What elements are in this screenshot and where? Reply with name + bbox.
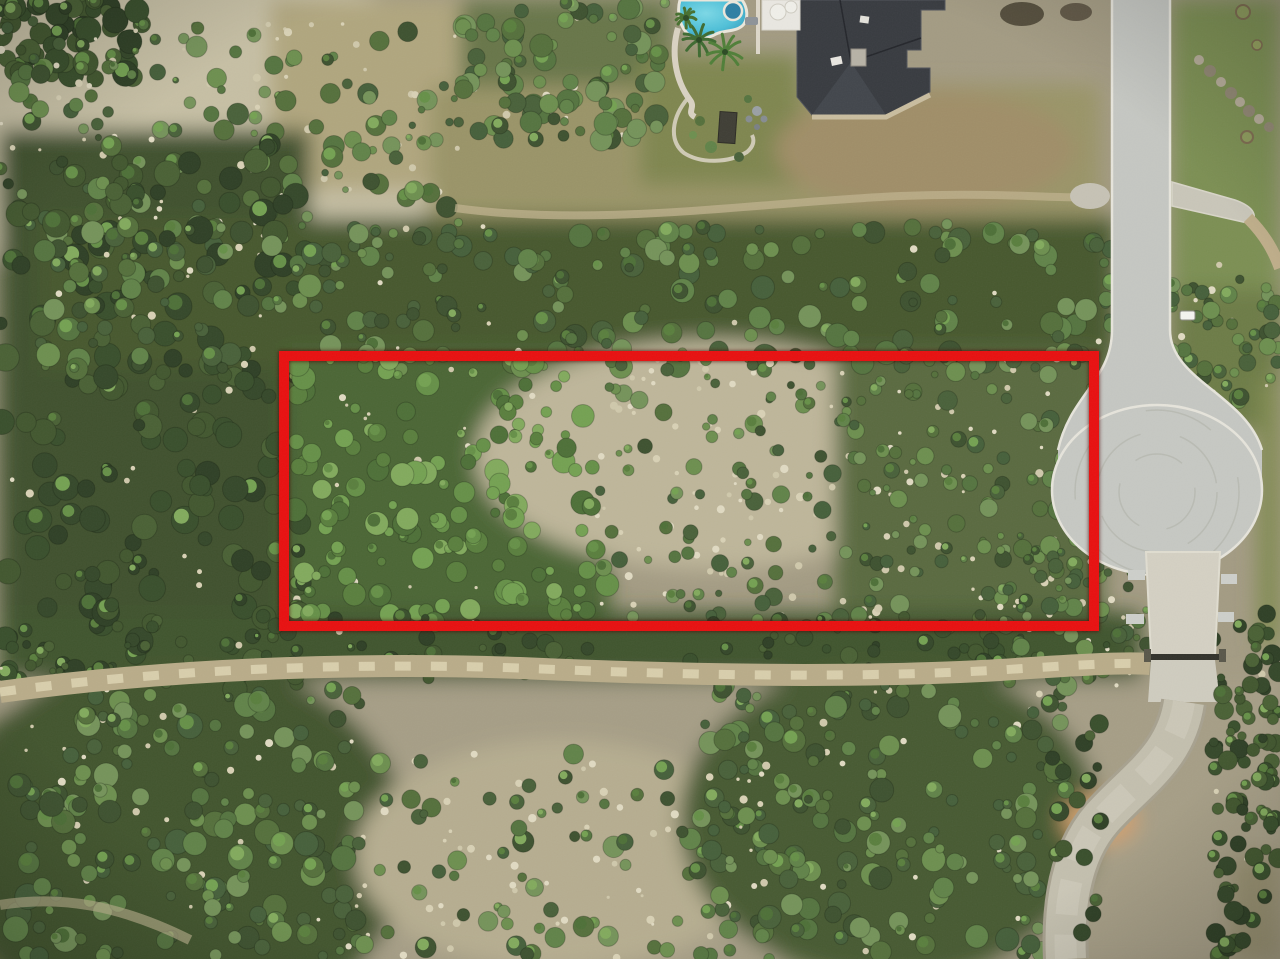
vignette-overlay [0,0,1280,959]
aerial-photo-canvas [0,0,1280,959]
aerial-photo [0,0,1280,959]
